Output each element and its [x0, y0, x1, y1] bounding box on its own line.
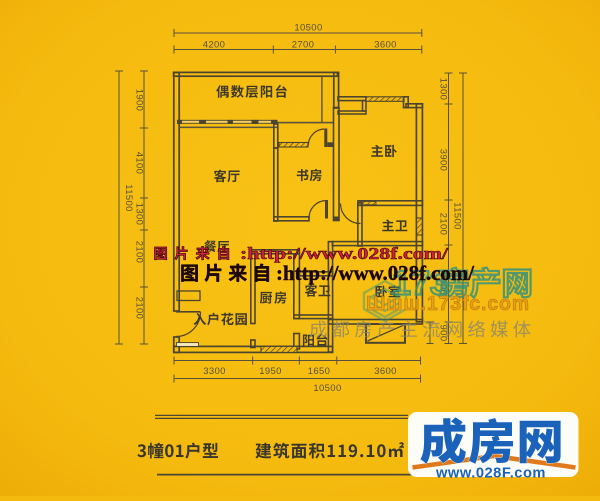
- svg-text:1300: 1300: [438, 78, 449, 101]
- svg-text::http://www.028f.com/: :http://www.028f.com/: [240, 244, 448, 263]
- svg-text:11500: 11500: [452, 202, 463, 229]
- svg-text:www.028F.com: www.028F.com: [435, 466, 546, 482]
- svg-text:2100: 2100: [438, 213, 449, 236]
- svg-text:Шшш.173fc.com: Шшш.173fc.com: [366, 292, 530, 315]
- svg-text:2700: 2700: [292, 40, 315, 51]
- svg-text::http://www.028f.com/: :http://www.028f.com/: [276, 261, 475, 285]
- svg-text:3600: 3600: [374, 40, 397, 51]
- svg-text:11500: 11500: [123, 184, 134, 211]
- svg-text:4200: 4200: [203, 40, 226, 51]
- svg-text:3900: 3900: [438, 149, 449, 172]
- svg-text:1900: 1900: [134, 89, 145, 112]
- svg-text:3600: 3600: [374, 366, 397, 377]
- svg-text:10500: 10500: [313, 383, 341, 394]
- svg-text:3300: 3300: [203, 366, 226, 377]
- svg-text:1650: 1650: [308, 366, 331, 377]
- svg-text:1950: 1950: [259, 366, 282, 377]
- svg-text:2100: 2100: [134, 241, 145, 264]
- svg-text:1300: 1300: [134, 203, 145, 226]
- svg-text:10500: 10500: [294, 23, 322, 34]
- svg-text:4100: 4100: [134, 152, 145, 175]
- svg-text:2100: 2100: [134, 297, 145, 320]
